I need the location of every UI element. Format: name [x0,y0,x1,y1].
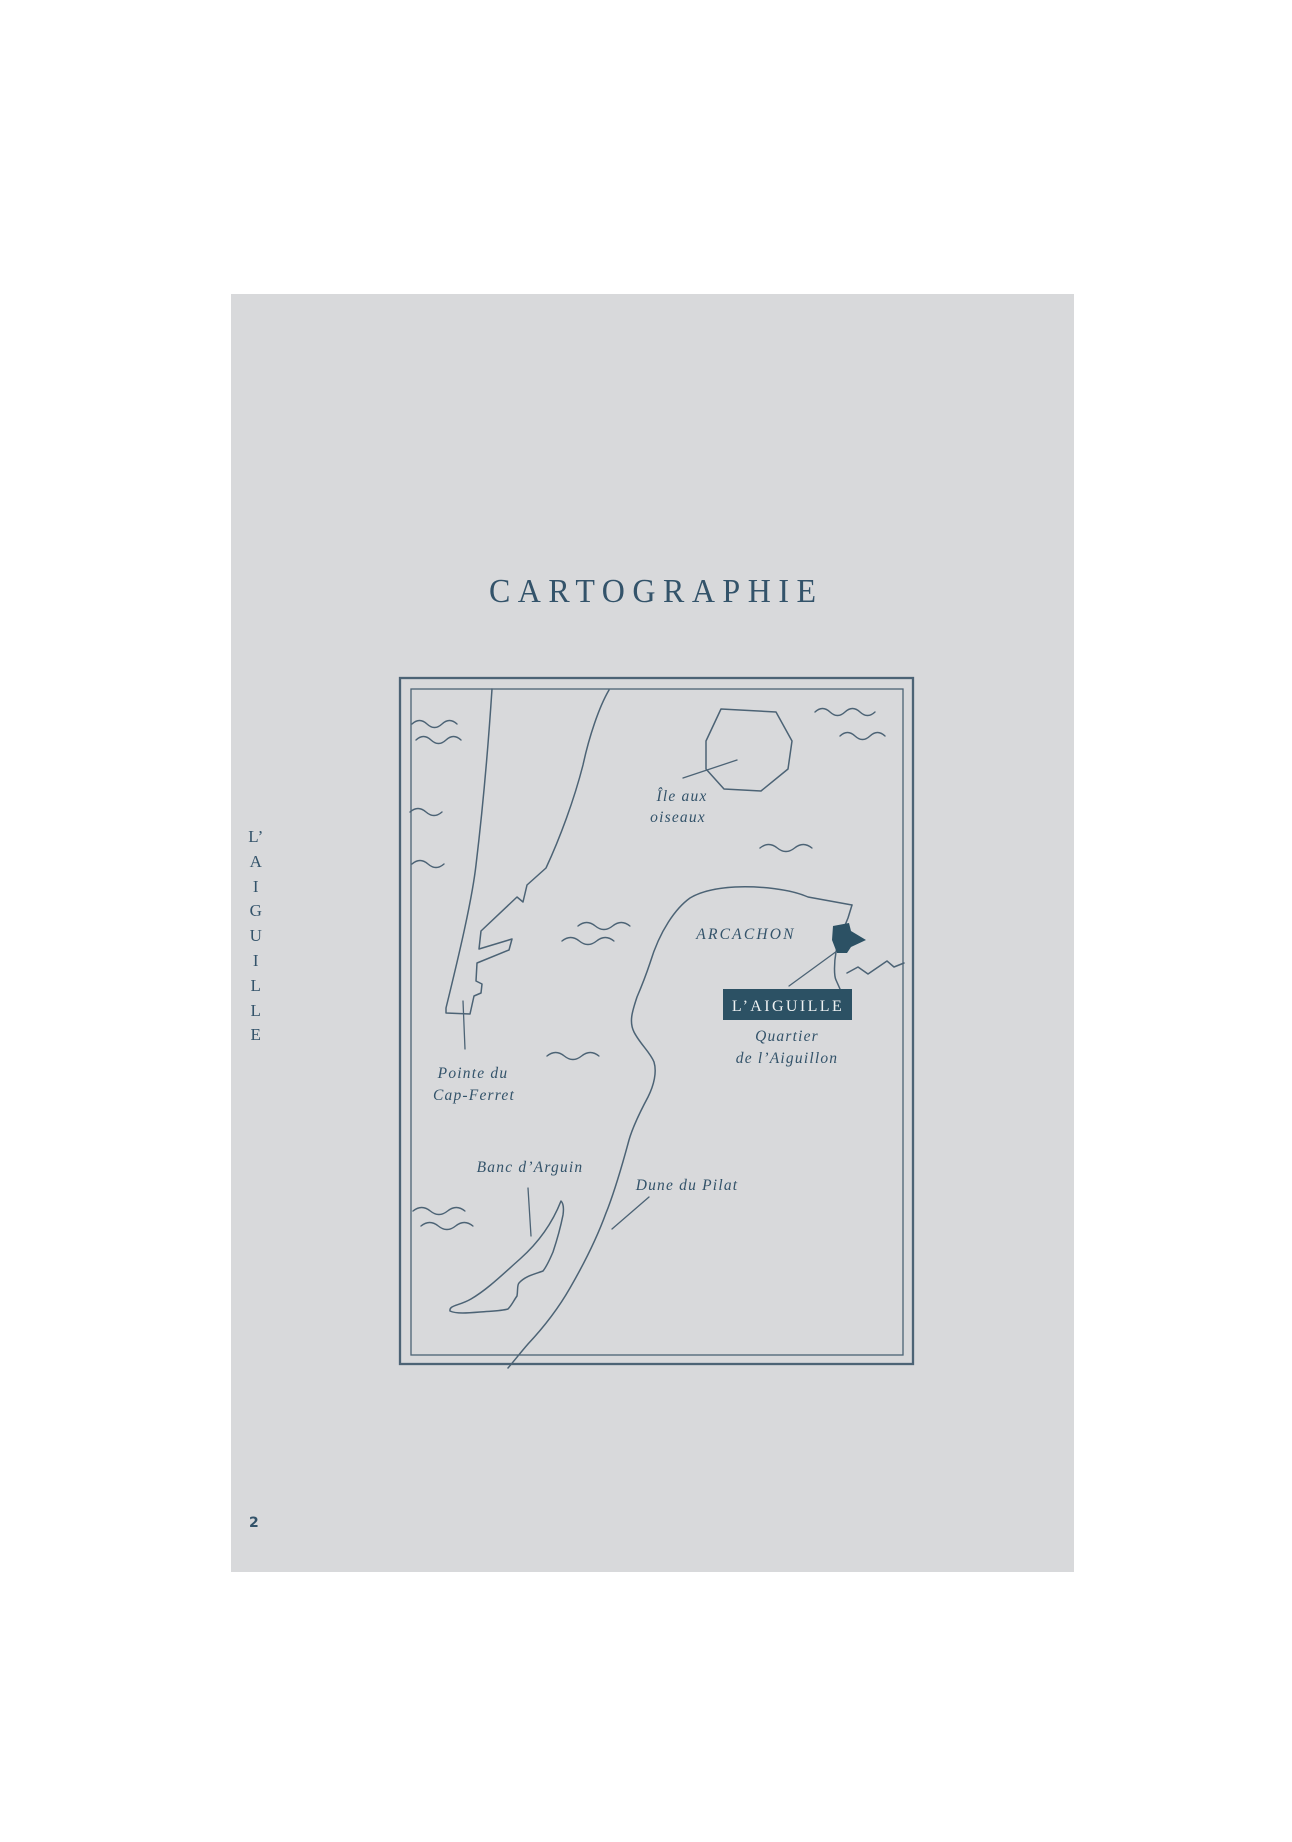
wave-icon [413,1208,465,1215]
dune-label: Dune du Pilat [635,1177,739,1194]
wave-icon [815,709,875,716]
district-label-line2: de l’Aiguillon [736,1050,838,1067]
pointer-line-cap-ferret [463,1001,465,1049]
wave-icon [416,737,461,744]
wave-icon [760,845,812,852]
district-label-line1: Quartier [755,1028,819,1045]
coastline-inlet-east [847,961,904,974]
wave-icon [840,733,885,740]
sandbank-outline [450,1201,563,1313]
wave-icon [578,923,630,930]
wave-icon [410,809,442,816]
pointer-line-island [683,760,737,778]
coastline-bay-east [508,887,852,1368]
island-label-line2: oiseaux [650,809,706,826]
page-number: 2 [249,1515,259,1531]
city-label: ARCACHON [695,926,795,943]
wave-icon [421,1223,473,1230]
location-flag-icon [832,923,866,953]
highlight-label: L’AIGUILLE [732,998,844,1015]
wave-icon [547,1053,599,1060]
cape-label-line1: Pointe du [437,1065,509,1082]
pointer-line-dune [612,1197,649,1229]
page-canvas: CARTOGRAPHIE L’ A I G U I L L E [0,0,1292,1842]
island-outline [706,709,792,791]
cape-label-line2: Cap-Ferret [433,1087,515,1104]
coastline-cap-ferret [446,689,609,1014]
sandbank-label: Banc d’Arguin [477,1159,584,1176]
pointer-line-aiguille [789,951,837,986]
book-page: CARTOGRAPHIE L’ A I G U I L L E [231,294,1074,1572]
map-frame-outer [400,678,913,1364]
map-figure: L’AIGUILLE Île aux oiseaux ARCACHON Quar… [231,294,1074,1572]
wave-icon [412,861,444,868]
island-label-line1: Île aux [655,788,707,805]
wave-icon [562,938,614,945]
pointer-line-sandbank [528,1188,531,1236]
wave-icon [412,721,457,728]
